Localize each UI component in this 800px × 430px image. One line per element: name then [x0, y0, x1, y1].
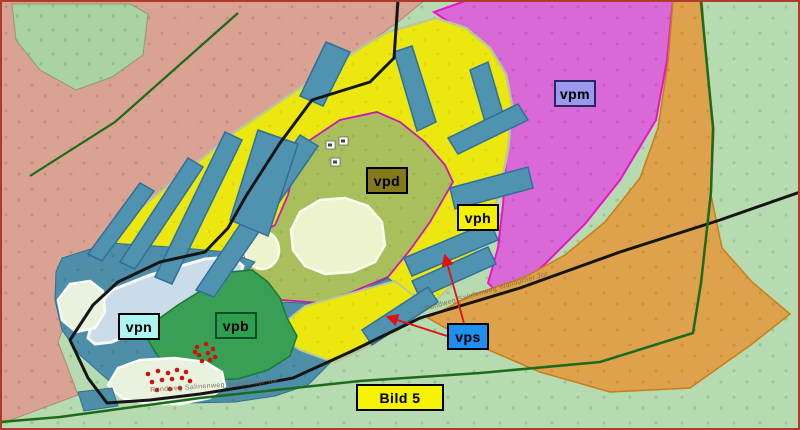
zone-label-vpd[interactable]: vpd — [366, 167, 408, 194]
map-symbol-icon — [326, 141, 335, 149]
map-symbol-icon — [339, 137, 348, 145]
zone-label-vps[interactable]: vps — [447, 323, 489, 350]
zone-label-vph[interactable]: vph — [457, 204, 499, 231]
map-symbol-icon — [331, 158, 340, 166]
map-canvas: vpm vpd vph vpn vpb vps Bild 5 Rundweg S… — [0, 0, 800, 430]
zone-label-vpn[interactable]: vpn — [118, 313, 160, 340]
figure-label-bild5[interactable]: Bild 5 — [356, 384, 444, 411]
pond-cream — [291, 198, 385, 274]
map-drawing — [0, 0, 800, 430]
zone-label-vpb[interactable]: vpb — [215, 312, 257, 339]
zone-label-vpm[interactable]: vpm — [554, 80, 596, 107]
